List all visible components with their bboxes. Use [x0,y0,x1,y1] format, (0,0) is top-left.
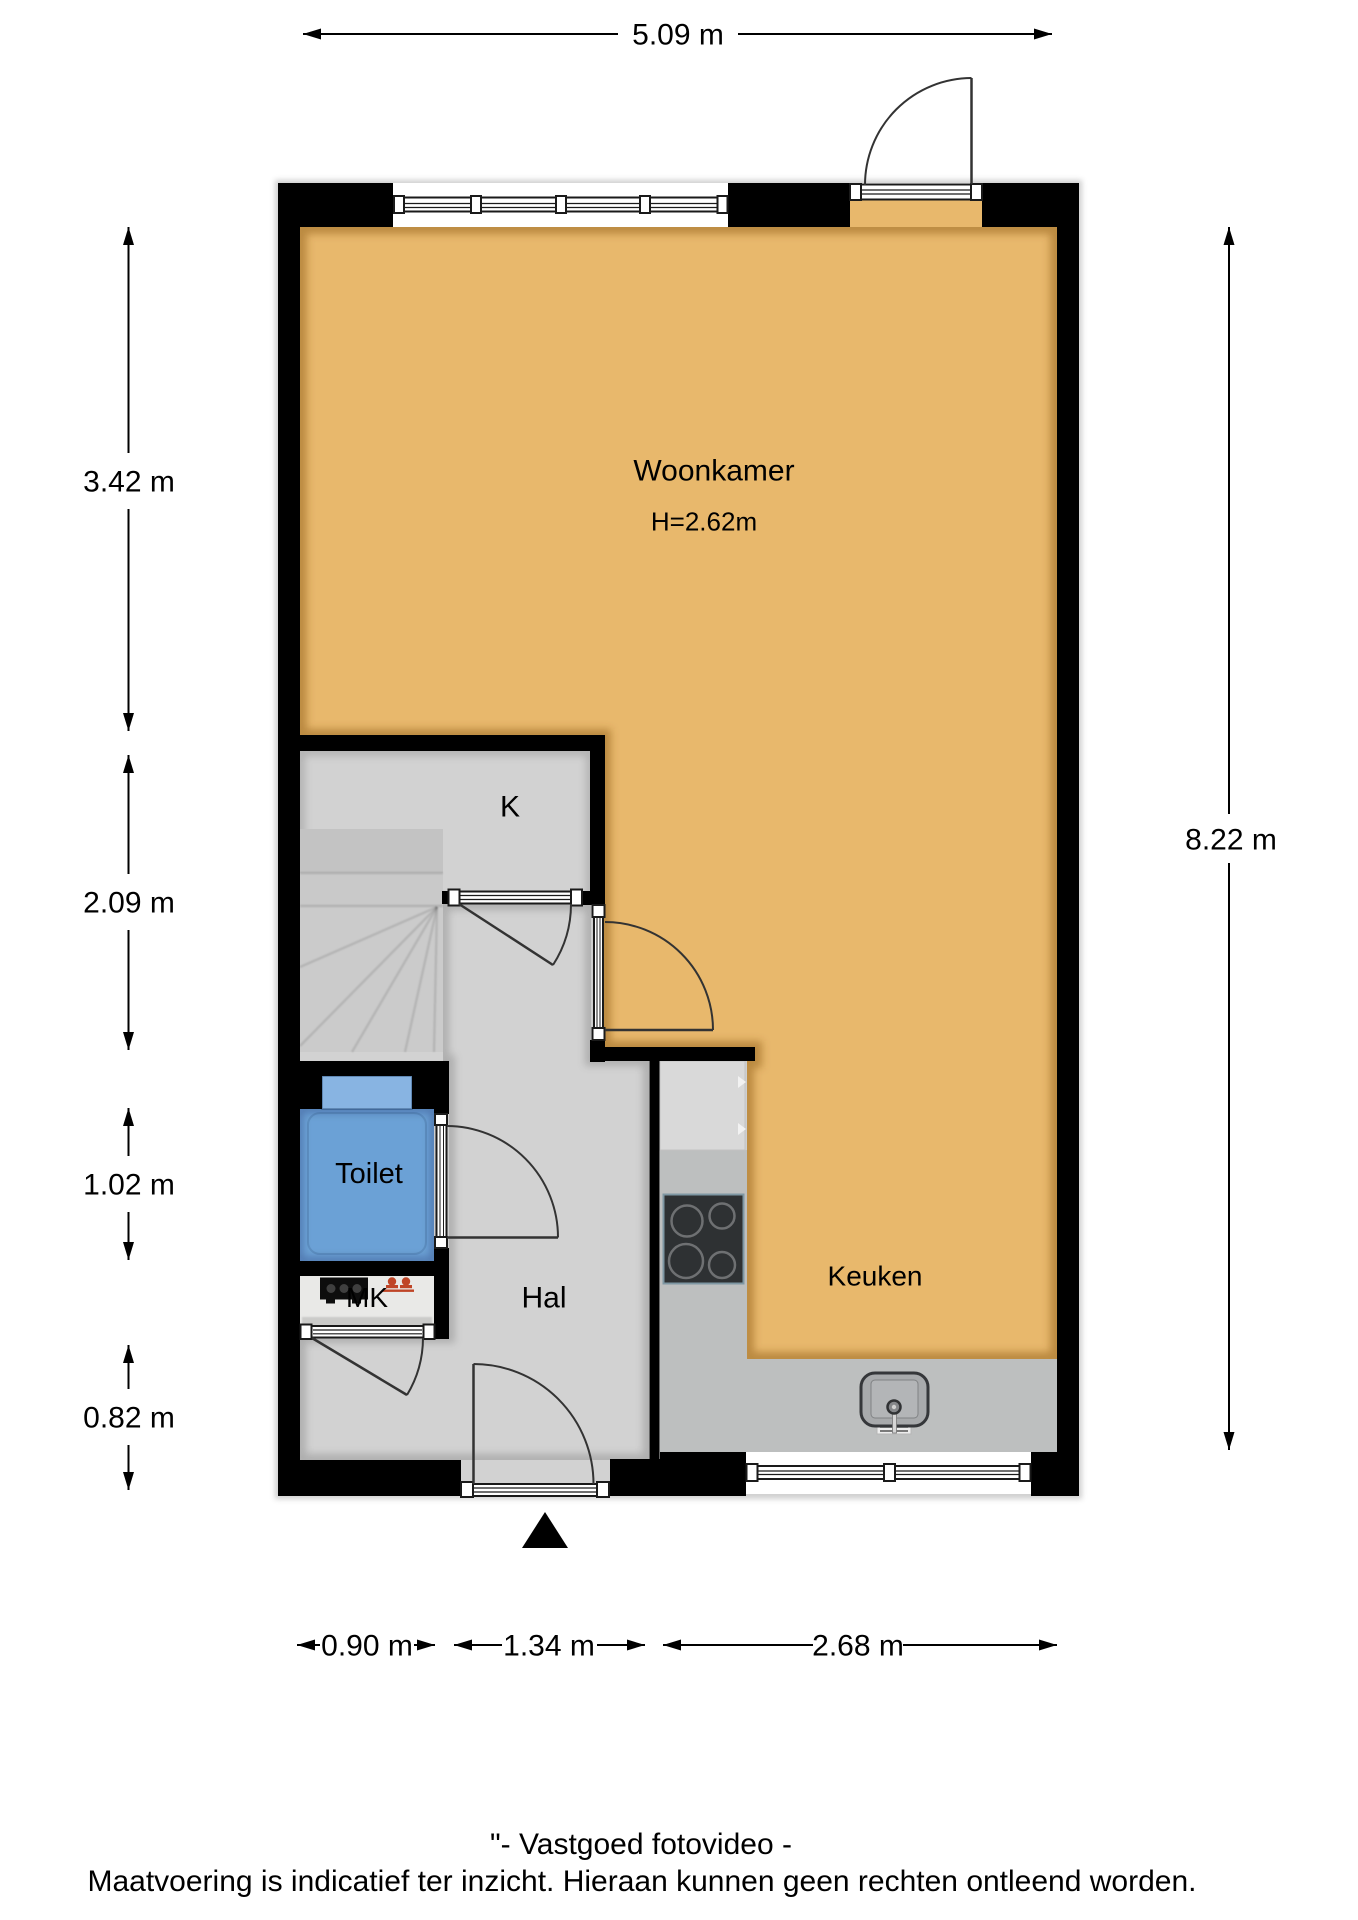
svg-text:Maatvoering is indicatief ter: Maatvoering is indicatief ter inzicht. H… [87,1865,1196,1898]
svg-text:2.68 m: 2.68 m [812,1630,904,1663]
svg-text:1.34 m: 1.34 m [503,1630,595,1663]
svg-text:K: K [500,791,520,824]
svg-text:8.22 m: 8.22 m [1185,824,1277,857]
svg-text:0.82 m: 0.82 m [83,1402,175,1435]
svg-text:1.02 m: 1.02 m [83,1169,175,1202]
svg-text:2.09 m: 2.09 m [83,887,175,920]
svg-text:H=2.62m: H=2.62m [651,507,757,537]
svg-text:Hal: Hal [521,1282,566,1315]
svg-text:Toilet: Toilet [335,1158,403,1190]
svg-text:5.09 m: 5.09 m [632,19,724,52]
svg-text:3.42 m: 3.42 m [83,466,175,499]
svg-text:MK: MK [346,1282,388,1313]
svg-text:"- Vastgoed fotovideo -: "- Vastgoed fotovideo - [490,1828,792,1861]
svg-text:0.90 m: 0.90 m [321,1630,413,1663]
svg-text:Woonkamer: Woonkamer [633,455,794,488]
svg-text:Keuken: Keuken [828,1261,923,1292]
